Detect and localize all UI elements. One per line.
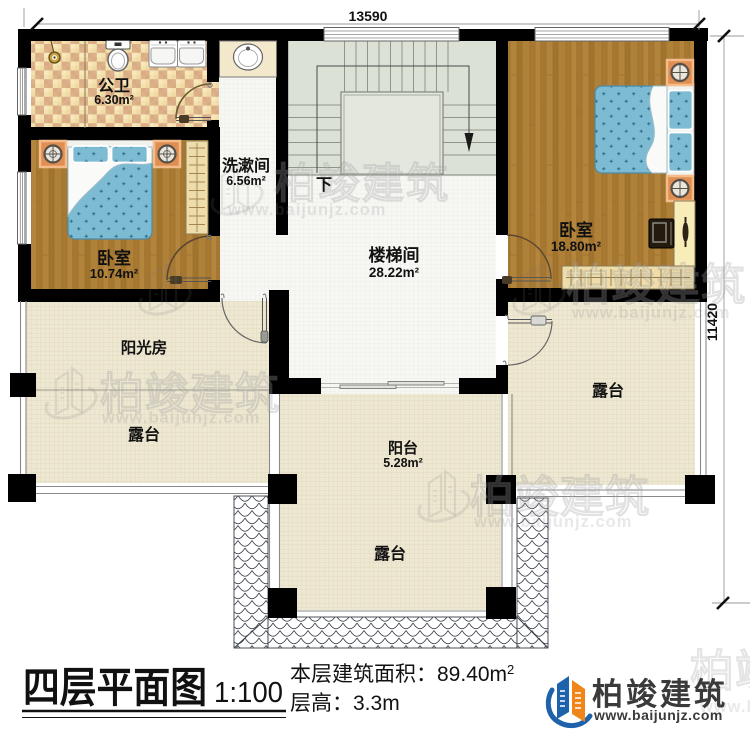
svg-text:卧室: 卧室 [97, 248, 131, 268]
svg-text:www.baijunjz.com: www.baijunjz.com [227, 201, 386, 219]
svg-text:露台: 露台 [128, 425, 160, 444]
svg-text:四层平面图: 四层平面图 [23, 664, 207, 711]
svg-text:阳光房: 阳光房 [121, 338, 168, 357]
svg-text:28.22m²: 28.22m² [369, 265, 420, 280]
svg-text:5.28m²: 5.28m² [383, 456, 423, 470]
svg-text:柏竣建筑: 柏竣建筑 [566, 261, 746, 310]
svg-text:本层建筑面积：89.40m2: 本层建筑面积：89.40m2 [290, 662, 514, 686]
svg-text:卧室: 卧室 [559, 220, 593, 240]
svg-text:下: 下 [316, 177, 332, 194]
svg-text:层高：3.3m: 层高：3.3m [290, 692, 400, 715]
svg-text:www.baijunjz.com: www.baijunjz.com [101, 409, 260, 427]
svg-text:阳台: 阳台 [388, 439, 418, 457]
svg-text:露台: 露台 [374, 544, 406, 563]
svg-text:6.30m²: 6.30m² [94, 93, 134, 107]
svg-text:13590: 13590 [349, 8, 388, 24]
svg-text:www.baijunjz.com: www.baijunjz.com [593, 707, 723, 723]
svg-text:柏竣建筑: 柏竣建筑 [274, 160, 450, 207]
svg-text:洗漱间: 洗漱间 [222, 156, 270, 175]
svg-text:www.baijunjz.com: www.baijunjz.com [473, 513, 632, 531]
svg-text:楼梯间: 楼梯间 [369, 245, 420, 265]
svg-text:11420: 11420 [704, 303, 720, 341]
svg-text:10.74m²: 10.74m² [90, 266, 139, 281]
svg-text:露台: 露台 [592, 381, 624, 400]
svg-text:1:100: 1:100 [214, 677, 283, 709]
svg-text:6.56m²: 6.56m² [226, 174, 266, 188]
svg-text:18.80m²: 18.80m² [551, 239, 602, 254]
